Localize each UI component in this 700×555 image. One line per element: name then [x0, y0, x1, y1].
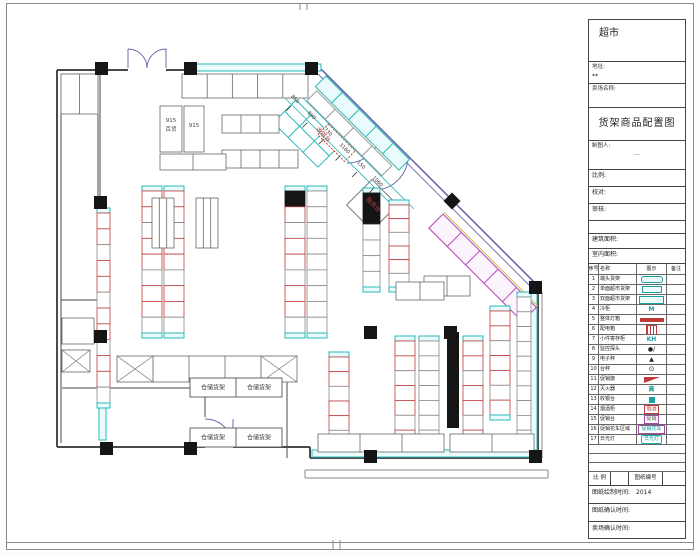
- storage-shelf: 仓储货架: [236, 428, 282, 447]
- legend-row: 4冷柜M: [589, 305, 685, 315]
- shelf-row: [222, 150, 298, 168]
- title-field: 室内面积:: [589, 249, 685, 264]
- legend-row: 1端头货架: [589, 275, 685, 285]
- dimension-tick: [336, 156, 341, 161]
- gondola-run: [395, 336, 415, 450]
- legend-row: 12灭火器高: [589, 385, 685, 395]
- legend-icon-gridred: [646, 325, 657, 334]
- legend-row: 5整体灯箱: [589, 315, 685, 325]
- legend-icon-barred: [640, 318, 664, 322]
- dimension-tick: [352, 172, 357, 177]
- entrance-double-door: [128, 49, 166, 68]
- column: [184, 62, 197, 75]
- legend-header: 名称: [599, 264, 637, 274]
- title-field: 审核:: [589, 204, 685, 221]
- column: [364, 326, 377, 339]
- legend-icon-sqteal: [649, 397, 655, 403]
- legend-row: 15促销台促销: [589, 415, 685, 425]
- legend-row: 3双面超市货架: [589, 295, 685, 305]
- svg-text:仓储货架: 仓储货架: [247, 384, 271, 392]
- legend-row: 14烟酒柜烟酒: [589, 405, 685, 415]
- shelf-row: [184, 106, 204, 152]
- shelf-row: [182, 74, 308, 98]
- shelf-row: [222, 115, 279, 133]
- gondola-run: [389, 200, 409, 292]
- plan-label: 百货: [165, 125, 177, 133]
- legend-header: 序号: [589, 264, 599, 274]
- legend-icon-tri: ▲: [649, 356, 654, 364]
- shelf-row: [450, 434, 534, 452]
- legend-icon-cdot: ⊙: [649, 365, 655, 374]
- legend-row: 6配电箱: [589, 325, 685, 335]
- legend-icon-rectw: [639, 296, 664, 304]
- legend-header: 备注: [667, 264, 685, 274]
- column: [529, 450, 542, 463]
- address-field: 地址: **: [589, 62, 685, 84]
- legend-row: 2单面超市货架: [589, 285, 685, 295]
- legend-empty-row: [589, 454, 685, 463]
- title-fields: 比例:校对:审核:建筑面积:室内面积:: [589, 170, 685, 264]
- legend-icon-tteal: 高: [648, 386, 654, 394]
- shelf-row: [61, 74, 98, 114]
- drawing-title: 货架商品配置图: [589, 108, 685, 141]
- gondola-run: [97, 208, 110, 408]
- column: [94, 196, 107, 209]
- crossed-box: [62, 350, 90, 372]
- time-row: 图纸确认时间:: [589, 504, 685, 522]
- crossed-box: [117, 356, 153, 382]
- legend-icon-tteal: M: [649, 306, 655, 314]
- column: [364, 450, 377, 463]
- dimension-label: 150: [355, 160, 366, 171]
- gondola-run: [285, 186, 305, 338]
- legend-icon-boxcynw: 日光灯: [641, 435, 662, 443]
- title-field: 校对:: [589, 187, 685, 204]
- legend-icon-tteal: KH: [647, 336, 657, 344]
- storage-shelf: 仓储货架: [236, 378, 282, 397]
- plan-label: 915: [166, 118, 177, 124]
- svg-text:仓储货架: 仓储货架: [201, 434, 225, 442]
- legend-row: 7小件寄存柜KH: [589, 335, 685, 345]
- time-row: 卖场确认时间:: [589, 522, 685, 540]
- shelf-row: [160, 154, 226, 170]
- svg-text:仓储货架: 仓储货架: [201, 384, 225, 392]
- legend-row: 10台秤⊙: [589, 365, 685, 375]
- legend-row: 9电子秤▲: [589, 355, 685, 365]
- gondola-run: [490, 306, 510, 420]
- store-name-field: 卖场名称:: [589, 84, 685, 108]
- legend-header: 图示: [637, 264, 667, 274]
- legend-icon-flag: [644, 377, 660, 383]
- legend-row: 17日光灯日光灯: [589, 435, 685, 445]
- drafter-field: 制图人: ···: [589, 141, 685, 170]
- legend-icon-boxpur: 促销: [644, 415, 658, 423]
- legend-icon-dot: ●/: [648, 346, 655, 354]
- gondola-run: [419, 336, 439, 450]
- scale-row: 比 例 图纸编号: [589, 472, 685, 486]
- freezer-bar: [447, 332, 459, 428]
- column: [184, 442, 197, 455]
- legend-table: 序号名称图示备注1端头货架2单面超市货架3双面超市货架4冷柜M5整体灯箱6配电箱…: [589, 264, 685, 472]
- column: [305, 62, 318, 75]
- legend-icon-pill: [641, 276, 663, 283]
- legend-empty-row: [589, 445, 685, 454]
- column: [95, 62, 108, 75]
- legend-row: 8监控探头●/: [589, 345, 685, 355]
- legend-empty-row: [589, 463, 685, 472]
- legend-icon-boxpurw: 促销花车: [638, 425, 664, 433]
- gondola-run: [517, 292, 531, 450]
- gondola-run: [463, 336, 483, 450]
- column: [100, 442, 113, 455]
- plan-label: 915: [189, 123, 200, 129]
- title-field: 建筑面积:: [589, 234, 685, 249]
- store-type: 超市: [589, 20, 685, 62]
- title-field: 比例:: [589, 170, 685, 187]
- legend-row: 11促销旗: [589, 375, 685, 385]
- shelf-row: [318, 434, 444, 452]
- storage-shelf: 仓储货架: [190, 378, 236, 397]
- legend-icon-boxred: 烟酒: [644, 405, 658, 413]
- column: [94, 330, 107, 343]
- shelf-row: [396, 282, 444, 300]
- gondola-run: [307, 186, 327, 338]
- shelf-row: [196, 198, 218, 248]
- time-row: 图纸绘制时间:2014: [589, 486, 685, 504]
- shelf-row: [62, 318, 94, 344]
- title-block: 超市 地址: ** 卖场名称: 货架商品配置图 制图人: ··· 比例:校对:审…: [588, 19, 686, 539]
- svg-text:仓储货架: 仓储货架: [247, 434, 271, 442]
- legend-row: 16促销花车区域促销花车: [589, 425, 685, 435]
- legend-icon-rect: [642, 286, 662, 293]
- time-rows: 图纸绘制时间:2014图纸确认时间:卖场确认时间:: [589, 486, 685, 540]
- column: [529, 281, 542, 294]
- title-field: [589, 221, 685, 234]
- legend-row: 13收银台: [589, 395, 685, 405]
- shelf-row: [152, 198, 174, 248]
